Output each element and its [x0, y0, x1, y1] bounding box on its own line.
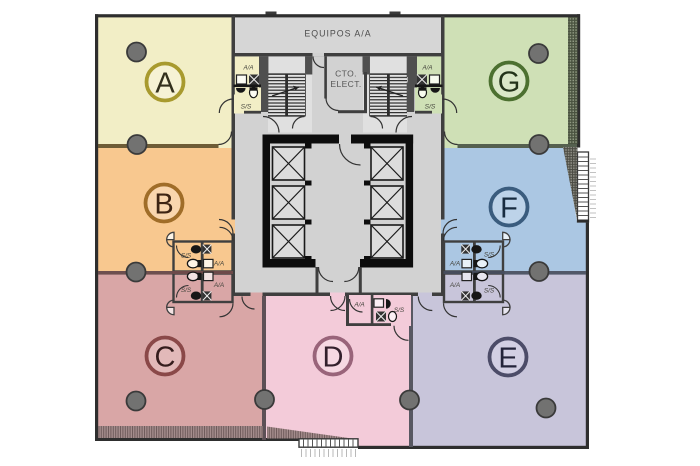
svg-text:S/S: S/S: [181, 287, 192, 294]
svg-text:ELECT.: ELECT.: [330, 79, 361, 89]
svg-text:S/S: S/S: [181, 253, 192, 260]
svg-text:A/A: A/A: [449, 282, 460, 289]
svg-text:C: C: [155, 342, 176, 374]
svg-text:S/S: S/S: [425, 104, 436, 111]
svg-text:A/A: A/A: [449, 261, 460, 268]
svg-text:A/A: A/A: [422, 65, 433, 72]
svg-text:S/S: S/S: [394, 307, 405, 314]
svg-text:S/S: S/S: [241, 104, 252, 111]
svg-text:D: D: [323, 342, 344, 374]
svg-text:A/A: A/A: [243, 65, 254, 72]
svg-text:B: B: [154, 189, 173, 221]
svg-text:S/S: S/S: [484, 288, 495, 295]
svg-text:A: A: [155, 68, 175, 100]
svg-text:G: G: [498, 67, 521, 99]
svg-text:EQUIPOS A/A: EQUIPOS A/A: [304, 29, 371, 39]
svg-text:CTO.: CTO.: [335, 69, 357, 79]
svg-text:A/A: A/A: [213, 261, 224, 268]
svg-text:S/S: S/S: [484, 252, 495, 259]
svg-text:F: F: [500, 193, 518, 225]
svg-text:E: E: [498, 343, 517, 375]
svg-text:A/A: A/A: [353, 302, 364, 309]
svg-text:A/A: A/A: [213, 282, 224, 289]
